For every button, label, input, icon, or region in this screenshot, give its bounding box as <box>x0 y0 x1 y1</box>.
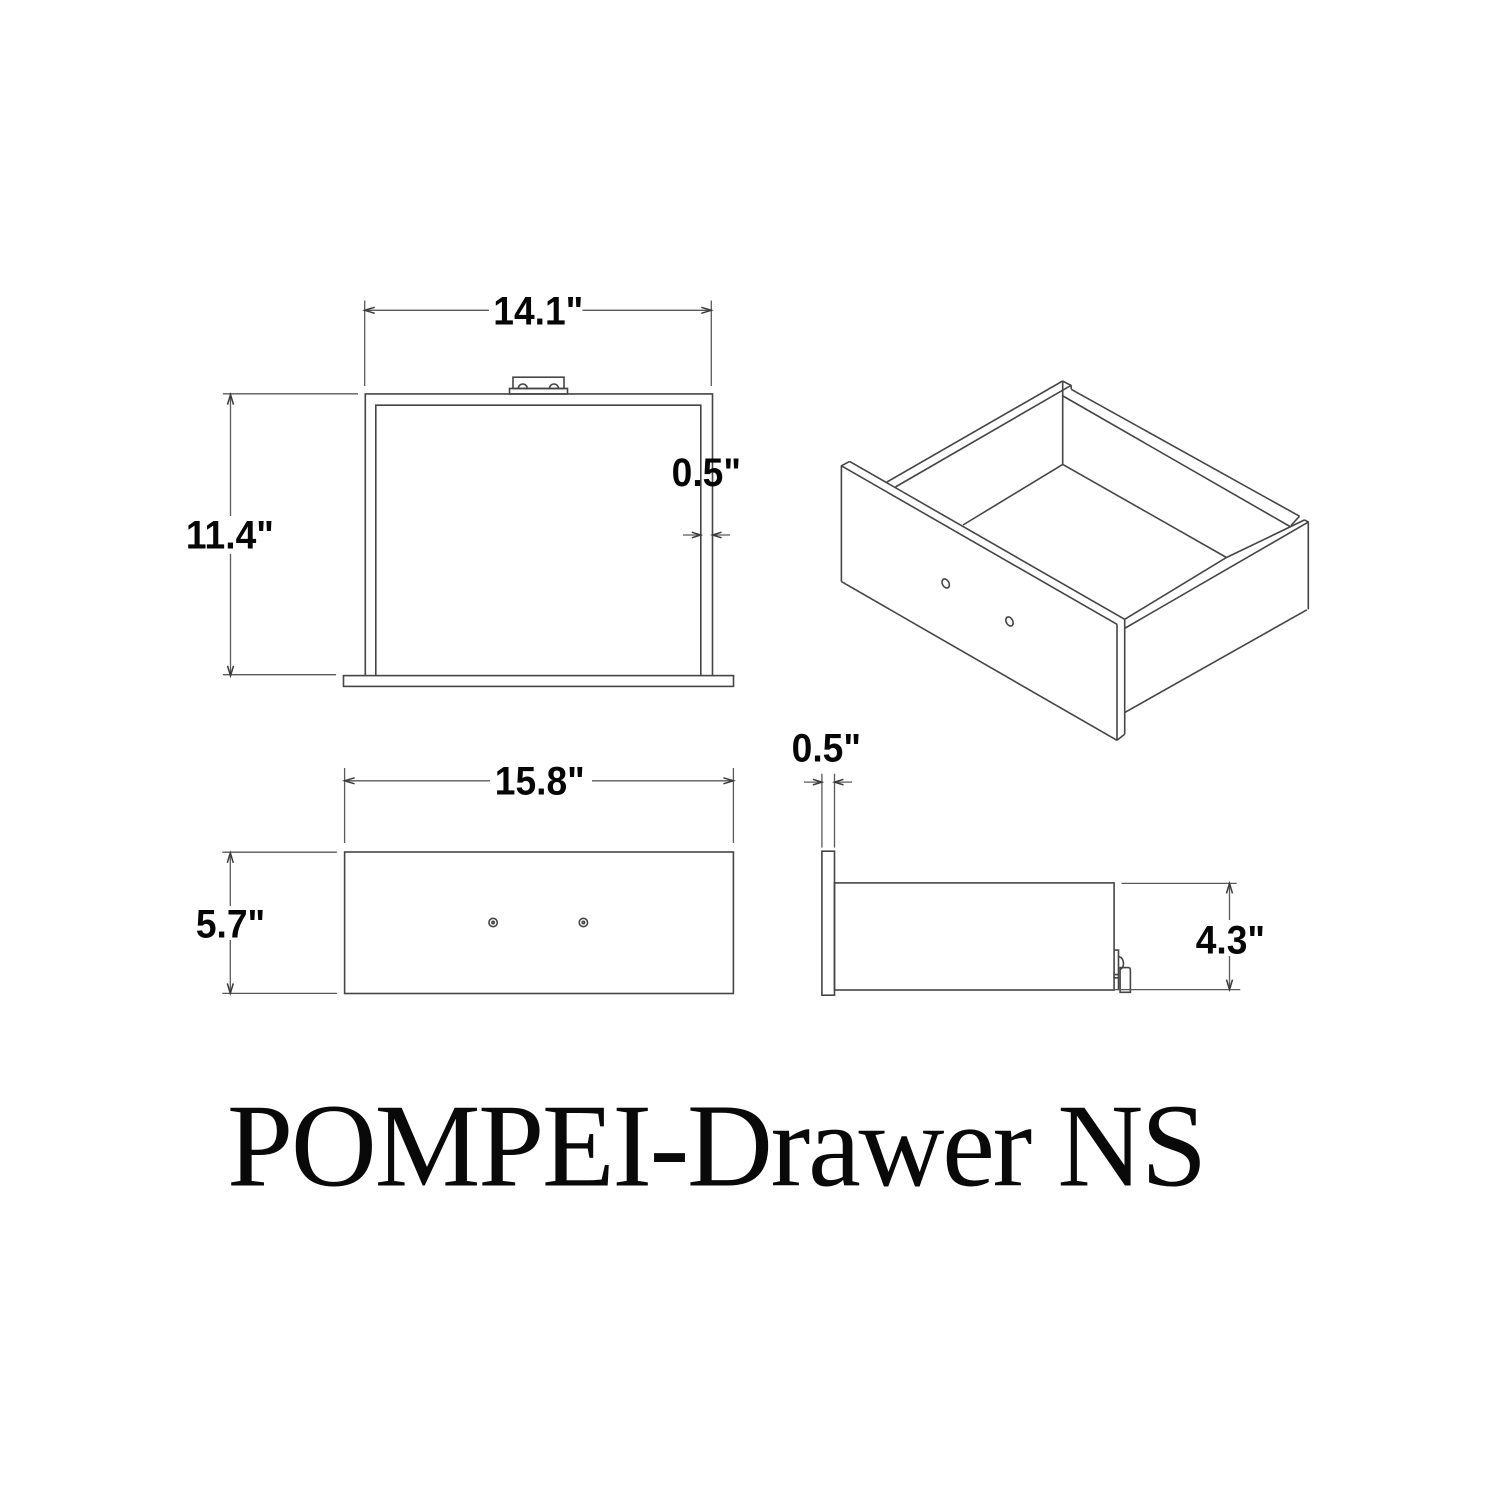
svg-text:4.3": 4.3" <box>1196 918 1265 963</box>
svg-text:15.8": 15.8" <box>495 759 585 804</box>
svg-text:11.4": 11.4" <box>186 513 274 558</box>
svg-text:0.5": 0.5" <box>672 451 741 496</box>
svg-text:5.7": 5.7" <box>196 902 265 947</box>
svg-text:POMPEI-Drawer NS: POMPEI-Drawer NS <box>227 1080 1205 1212</box>
svg-text:0.5": 0.5" <box>792 726 861 771</box>
svg-text:14.1": 14.1" <box>493 289 583 334</box>
